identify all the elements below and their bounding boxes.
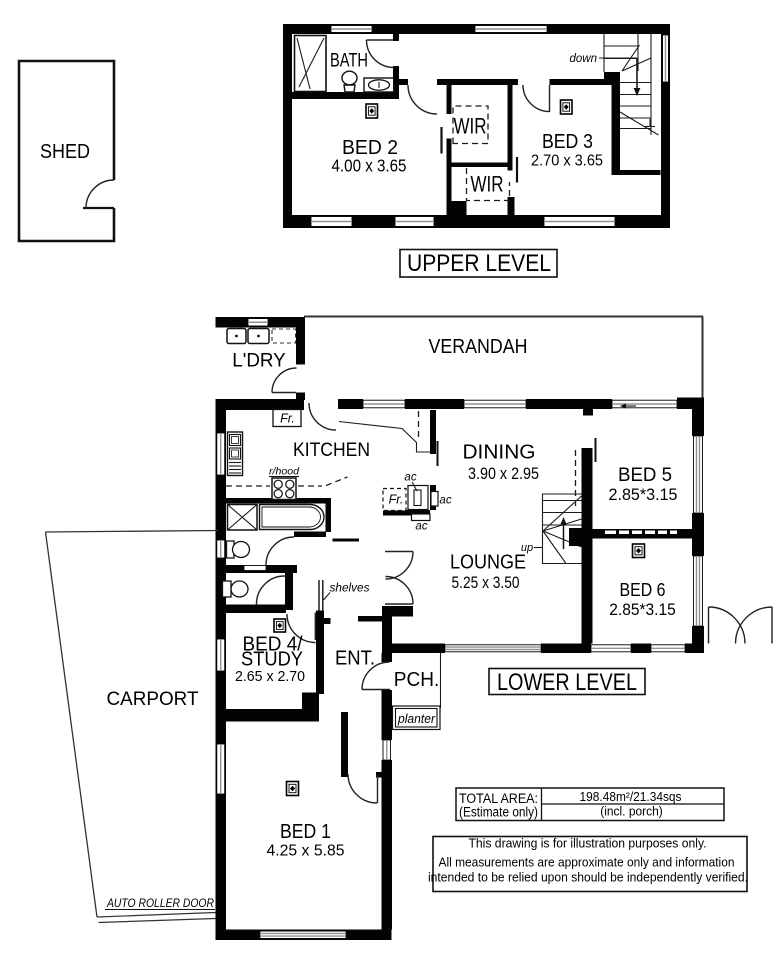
svg-text:BED 3: BED 3 (542, 131, 593, 153)
svg-text:(incl. porch): (incl. porch) (600, 805, 663, 819)
svg-text:WIR: WIR (471, 172, 504, 197)
svg-text:ac: ac (415, 521, 427, 533)
svg-text:(Estimate only): (Estimate only) (459, 805, 538, 820)
svg-text:down: down (570, 53, 598, 65)
svg-text:All measurements are approxima: All measurements are approximate only an… (439, 856, 735, 870)
svg-text:BED 1: BED 1 (280, 821, 331, 843)
svg-text:BED 5: BED 5 (618, 465, 672, 486)
svg-text:shelves: shelves (330, 583, 370, 595)
svg-text:planter: planter (397, 711, 436, 726)
svg-text:This drawing is for illustrati: This drawing is for illustration purpose… (469, 837, 707, 851)
svg-text:KITCHEN: KITCHEN (293, 440, 370, 461)
svg-text:ac: ac (404, 472, 416, 484)
svg-text:5.25 x 3.50: 5.25 x 3.50 (452, 573, 520, 592)
svg-text:SHED: SHED (40, 141, 90, 163)
svg-text:AUTO ROLLER DOOR: AUTO ROLLER DOOR (106, 896, 214, 910)
svg-text:198.48m²/21.34sqs: 198.48m²/21.34sqs (580, 790, 682, 804)
svg-text:WIR: WIR (454, 114, 487, 139)
svg-text:UPPER LEVEL: UPPER LEVEL (407, 250, 551, 277)
svg-text:r/hood: r/hood (269, 466, 300, 478)
svg-text:STUDY: STUDY (241, 649, 303, 671)
svg-text:ac: ac (439, 495, 451, 507)
svg-text:LOWER LEVEL: LOWER LEVEL (497, 669, 637, 696)
svg-text:BED 6: BED 6 (620, 580, 666, 600)
svg-text:CARPORT: CARPORT (107, 688, 199, 710)
svg-text:LOUNGE: LOUNGE (450, 552, 526, 574)
svg-text:4.25 x 5.85: 4.25 x 5.85 (267, 843, 345, 860)
svg-text:DINING: DINING (463, 442, 536, 464)
svg-text:PCH.: PCH. (394, 669, 440, 691)
svg-text:4.00 x 3.65: 4.00 x 3.65 (332, 156, 407, 176)
svg-text:2.65 x 2.70: 2.65 x 2.70 (235, 669, 305, 685)
svg-text:VERANDAH: VERANDAH (429, 336, 528, 358)
svg-text:2.85*3.15: 2.85*3.15 (609, 600, 676, 619)
svg-text:ENT.: ENT. (335, 648, 375, 670)
svg-text:2.85*3.15: 2.85*3.15 (609, 485, 678, 504)
svg-text:3.90 x 2.95: 3.90 x 2.95 (468, 464, 539, 483)
svg-text:Fr.: Fr. (280, 412, 295, 426)
svg-text:BATH: BATH (330, 50, 368, 72)
svg-text:intended to be relied upon sho: intended to be relied upon should be ind… (428, 871, 748, 885)
svg-text:up: up (521, 542, 533, 554)
svg-text:L'DRY: L'DRY (232, 350, 286, 372)
svg-text:2.70 x 3.65: 2.70 x 3.65 (531, 153, 603, 170)
svg-text:Fr.: Fr. (389, 493, 404, 507)
